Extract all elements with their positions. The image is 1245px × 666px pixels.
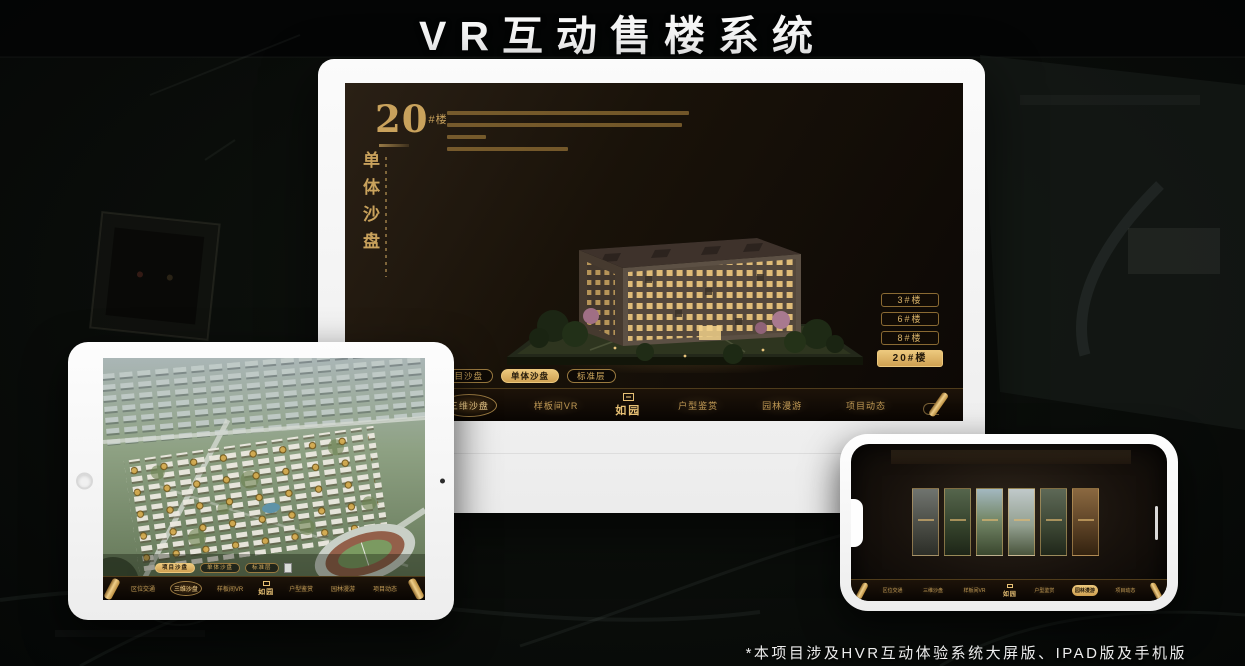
description-line: [447, 147, 568, 151]
nav-item-project-news[interactable]: 项目动态: [1112, 585, 1138, 596]
description-line: [447, 135, 486, 139]
brand-logo: 如园: [258, 581, 274, 597]
scroll-handle-icon[interactable]: [103, 577, 120, 600]
floor-button-20[interactable]: 20#楼: [877, 350, 943, 367]
description-line: [447, 111, 689, 115]
scroll-handle-icon[interactable]: [407, 577, 424, 600]
gallery-panel[interactable]: [944, 488, 971, 556]
nav-item-unit-plans[interactable]: 户型鉴赏: [1031, 585, 1057, 596]
phone-device: 区位交通 三维沙盘 样板间VR 如园 户型鉴赏 园林漫游 项目动态: [840, 434, 1178, 611]
gallery-panel[interactable]: [1040, 488, 1067, 556]
scroll-handle-icon[interactable]: [855, 581, 869, 600]
tablet-subtabs: 项目沙盘 单体沙盘 标准层: [155, 563, 292, 573]
brand-logo: 如园: [1003, 584, 1017, 598]
building-number: 20: [375, 97, 429, 141]
subtab-project-sandtable[interactable]: 项目沙盘: [155, 563, 195, 573]
nav-item-unit-plans[interactable]: 户型鉴赏: [671, 395, 725, 416]
gallery-panel[interactable]: [976, 488, 1003, 556]
tablet-navbar: 区位交通 三维沙盘 样板间VR 如园 户型鉴赏 园林漫游 项目动态: [103, 576, 425, 600]
page-title: VR互动售楼系统: [0, 2, 1245, 62]
stage: VR互动售楼系统 20#楼 单体沙盘: [0, 0, 1245, 666]
compass-icon: [284, 563, 292, 573]
home-indicator: [1155, 506, 1158, 540]
nav-item-unit-plans[interactable]: 户型鉴赏: [286, 582, 316, 595]
floor-button-3[interactable]: 3#楼: [881, 293, 939, 307]
subtab-standard-floor[interactable]: 标准层: [245, 563, 279, 573]
gallery-panel[interactable]: [912, 488, 939, 556]
floor-button-8[interactable]: 8#楼: [881, 331, 939, 345]
tablet-screen: 项目沙盘 单体沙盘 标准层 区位交通 三维沙盘 样板间VR 如园 户型鉴赏 园林…: [103, 358, 425, 600]
subtab-standard-floor[interactable]: 标准层: [567, 369, 616, 383]
brand-logo: 如园: [615, 393, 641, 418]
subtab-single-sandtable[interactable]: 单体沙盘: [501, 369, 559, 383]
nav-item-3d-sandtable[interactable]: 三维沙盘: [170, 581, 202, 596]
nav-item-3d-sandtable[interactable]: 三维沙盘: [920, 585, 946, 596]
nav-item-garden-roam[interactable]: 园林漫游: [755, 395, 809, 416]
nav-item-project-news[interactable]: 项目动态: [839, 395, 893, 416]
headline-english-strip: [385, 157, 387, 277]
seal-icon: [263, 581, 270, 586]
nav-item-location[interactable]: 区位交通: [879, 585, 905, 596]
nav-item-showroom-vr[interactable]: 样板间VR: [214, 582, 246, 595]
brand-logo-text: 如园: [615, 402, 641, 418]
nav-item-showroom-vr[interactable]: 样板间VR: [527, 395, 586, 416]
nav-item-garden-roam[interactable]: 园林漫游: [1072, 585, 1098, 596]
brand-logo-text: 如园: [1003, 589, 1017, 598]
building-headline: 20#楼: [375, 97, 448, 151]
camera-icon: [440, 479, 445, 484]
home-button[interactable]: [76, 473, 93, 490]
gallery-panel[interactable]: [1072, 488, 1099, 556]
building-3d-model[interactable]: [495, 158, 875, 373]
brand-logo-text: 如园: [258, 587, 274, 597]
nav-item-showroom-vr[interactable]: 样板间VR: [960, 585, 988, 596]
seal-icon: [623, 393, 634, 401]
footnote: *本项目涉及HVR互动体验系统大屏版、IPAD版及手机版: [746, 642, 1187, 663]
desktop-subtabs: 项目沙盘 单体沙盘 标准层: [435, 369, 616, 383]
headline-vertical-label: 单体沙盘: [357, 151, 382, 311]
description-line: [447, 123, 682, 127]
phone-navbar: 区位交通 三维沙盘 样板间VR 如园 户型鉴赏 园林漫游 项目动态: [851, 579, 1167, 601]
tablet-device: 项目沙盘 单体沙盘 标准层 区位交通 三维沙盘 样板间VR 如园 户型鉴赏 园林…: [68, 342, 454, 620]
nav-item-location[interactable]: 区位交通: [128, 582, 158, 595]
interior-beam: [891, 450, 1131, 464]
nav-item-garden-roam[interactable]: 园林漫游: [328, 582, 358, 595]
headline-divider: [379, 144, 409, 147]
building-unit: #楼: [429, 114, 448, 126]
floor-button-group: 3#楼 6#楼 8#楼 20#楼: [877, 293, 943, 367]
gallery-panel[interactable]: [1008, 488, 1035, 556]
seal-icon: [1007, 584, 1013, 588]
floor-button-6[interactable]: 6#楼: [881, 312, 939, 326]
panorama-gallery: [912, 488, 1099, 556]
phone-notch: [851, 499, 863, 547]
phone-screen: 区位交通 三维沙盘 样板间VR 如园 户型鉴赏 园林漫游 项目动态: [851, 444, 1167, 601]
building-description: [447, 111, 689, 159]
nav-item-project-news[interactable]: 项目动态: [370, 582, 400, 595]
subtab-single-sandtable[interactable]: 单体沙盘: [200, 563, 240, 573]
scroll-handle-icon[interactable]: [1149, 581, 1163, 600]
scroll-handle-icon[interactable]: [923, 391, 951, 419]
